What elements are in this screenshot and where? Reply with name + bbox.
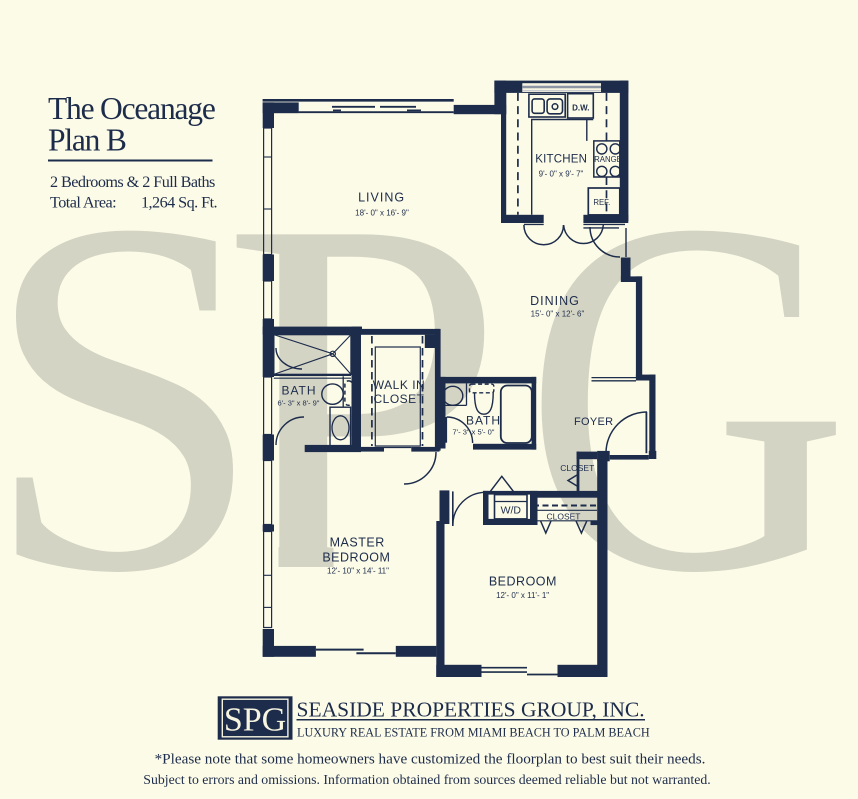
svg-text:BEDROOM: BEDROOM xyxy=(489,575,557,589)
svg-text:CLOSET: CLOSET xyxy=(546,512,580,522)
svg-text:Subject to errors and omission: Subject to errors and omissions. Informa… xyxy=(143,772,710,787)
svg-text:The Oceanage: The Oceanage xyxy=(48,91,215,126)
svg-text:LUXURY REAL ESTATE FROM MIAMI: LUXURY REAL ESTATE FROM MIAMI BEACH TO P… xyxy=(297,726,650,740)
svg-text:BEDROOM: BEDROOM xyxy=(322,551,390,565)
svg-text:MASTER: MASTER xyxy=(330,536,385,550)
svg-text:7'- 3" x 5'- 0": 7'- 3" x 5'- 0" xyxy=(453,428,495,437)
svg-text:W/D: W/D xyxy=(501,505,522,517)
svg-text:2 Bedrooms & 2 Full Baths: 2 Bedrooms & 2 Full Baths xyxy=(50,173,215,191)
svg-text:*Please note that some homeown: *Please note that some homeowners have c… xyxy=(155,751,706,768)
svg-text:15'- 0" x 12'- 6": 15'- 0" x 12'- 6" xyxy=(531,310,585,319)
svg-text:6'- 3" x 8'- 9": 6'- 3" x 8'- 9" xyxy=(278,399,320,408)
svg-text:SPG: SPG xyxy=(224,702,286,739)
svg-text:1,264 Sq. Ft.: 1,264 Sq. Ft. xyxy=(141,194,217,212)
svg-text:WALK IN: WALK IN xyxy=(373,378,425,392)
svg-text:Total Area:: Total Area: xyxy=(50,194,116,212)
svg-text:BATH: BATH xyxy=(281,384,316,398)
svg-text:SEASIDE PROPERTIES GROUP, INC.: SEASIDE PROPERTIES GROUP, INC. xyxy=(297,698,645,722)
svg-text:FOYER: FOYER xyxy=(574,416,613,428)
svg-text:9'- 0" x 9'- 7": 9'- 0" x 9'- 7" xyxy=(539,170,584,179)
svg-text:REF.: REF. xyxy=(593,198,610,207)
svg-text:18'- 0" x 16'- 9": 18'- 0" x 16'- 9" xyxy=(355,209,409,218)
svg-text:BATH: BATH xyxy=(466,414,501,428)
svg-text:G: G xyxy=(523,114,850,677)
svg-text:RANGE: RANGE xyxy=(594,155,622,164)
svg-text:KITCHEN: KITCHEN xyxy=(535,154,587,166)
svg-text:LIVING: LIVING xyxy=(358,191,405,205)
svg-text:12'- 10" x 14'- 11": 12'- 10" x 14'- 11" xyxy=(327,567,389,576)
svg-text:Plan B: Plan B xyxy=(48,123,126,158)
svg-text:CLOSET: CLOSET xyxy=(373,392,424,406)
svg-text:DINING: DINING xyxy=(530,294,580,308)
svg-text:12'- 0" x 11'- 1": 12'- 0" x 11'- 1" xyxy=(496,591,549,600)
svg-text:D.W.: D.W. xyxy=(572,104,589,113)
svg-text:CLOSET: CLOSET xyxy=(560,463,594,473)
